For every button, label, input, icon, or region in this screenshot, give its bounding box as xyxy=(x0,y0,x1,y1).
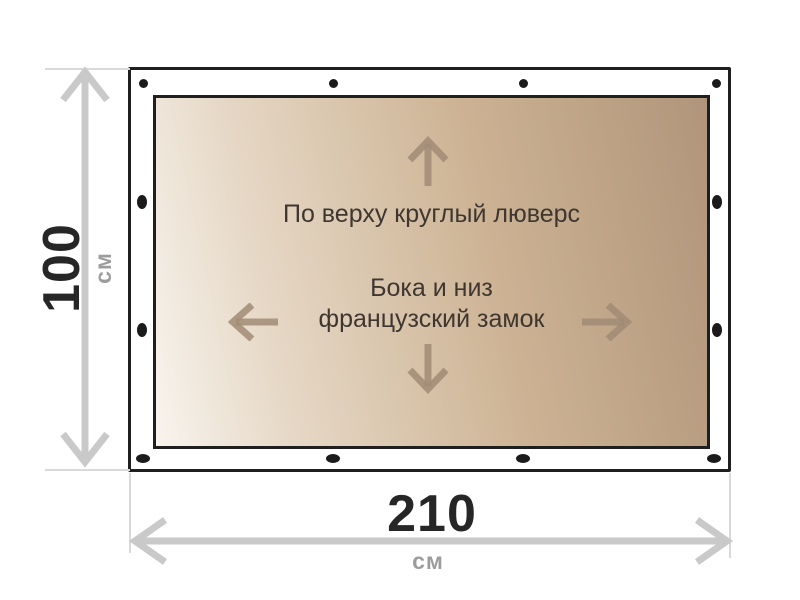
grommet-dot xyxy=(516,454,530,463)
grommet-dot xyxy=(136,454,150,463)
sides-bottom-label-line1: Бока и низ xyxy=(153,273,710,304)
grommet-dot xyxy=(707,454,721,463)
width-dimension-value: 210 xyxy=(307,488,557,540)
grommet-dot xyxy=(137,323,147,337)
grommet-dot xyxy=(712,79,721,88)
height-dimension-unit: см xyxy=(73,218,133,318)
sides-bottom-label-line2: французский замок xyxy=(153,304,710,335)
width-dimension-unit: см xyxy=(328,550,528,573)
tarp-dimension-diagram: По верху круглый люверс Бока и низ франц… xyxy=(0,0,800,600)
grommet-dot xyxy=(712,195,722,209)
grommet-dot xyxy=(519,79,528,88)
sides-bottom-label: Бока и низ французский замок xyxy=(153,273,710,335)
up-arrow-icon xyxy=(406,136,450,188)
down-arrow-icon xyxy=(406,342,450,394)
grommet-dot xyxy=(326,454,340,463)
grommet-dot xyxy=(139,79,148,88)
grommet-dot xyxy=(329,79,338,88)
top-edge-label: По верху круглый люверс xyxy=(153,199,710,229)
grommet-dot xyxy=(712,323,722,337)
grommet-dot xyxy=(137,195,147,209)
